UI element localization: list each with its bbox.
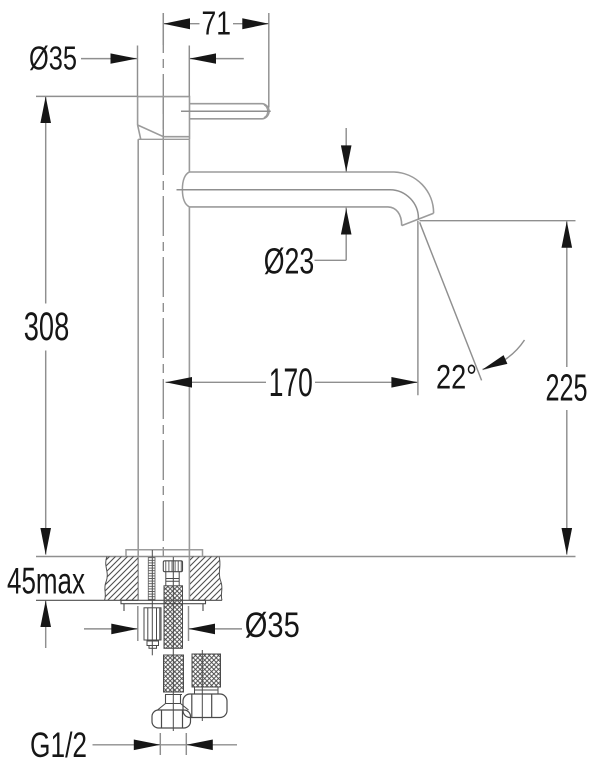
svg-text:225: 225 xyxy=(546,368,588,410)
svg-text:170: 170 xyxy=(269,361,313,405)
svg-text:G1/2: G1/2 xyxy=(30,726,87,765)
svg-text:Ø35: Ø35 xyxy=(29,41,77,78)
svg-text:45max: 45max xyxy=(7,561,85,602)
svg-text:71: 71 xyxy=(202,5,232,42)
svg-text:22°: 22° xyxy=(436,359,477,397)
svg-text:308: 308 xyxy=(24,305,70,349)
svg-text:Ø35: Ø35 xyxy=(245,606,300,645)
svg-text:Ø23: Ø23 xyxy=(264,241,315,282)
